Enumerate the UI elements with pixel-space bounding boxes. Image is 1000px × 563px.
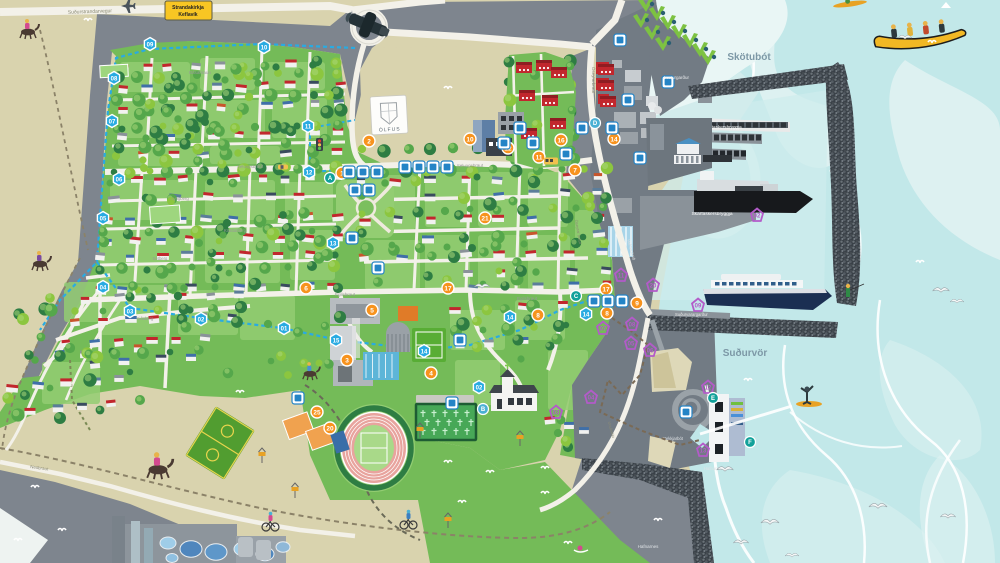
svg-text:03: 03: [553, 411, 560, 417]
svg-text:09: 09: [147, 42, 154, 48]
svg-text:Selvogsbraut: Selvogsbraut: [237, 164, 264, 169]
svg-text:ÓLFUS: ÓLFUS: [379, 125, 401, 133]
svg-text:09: 09: [695, 304, 702, 310]
svg-text:Selvogsbraut: Selvogsbraut: [457, 163, 484, 168]
svg-text:8: 8: [605, 310, 609, 317]
svg-text:20: 20: [650, 284, 657, 290]
svg-text:Egilsbraut: Egilsbraut: [335, 292, 356, 297]
svg-text:02: 02: [476, 385, 483, 391]
svg-text:5: 5: [370, 307, 374, 314]
svg-text:02: 02: [754, 214, 761, 220]
svg-text:B: B: [481, 407, 486, 413]
svg-text:F: F: [748, 440, 752, 446]
svg-text:Básahraun: Básahraun: [189, 70, 211, 75]
svg-text:9: 9: [635, 300, 639, 307]
svg-text:25: 25: [313, 409, 321, 416]
svg-text:2: 2: [367, 138, 371, 145]
svg-text:14: 14: [507, 315, 514, 321]
svg-text:21: 21: [481, 215, 489, 222]
svg-text:4: 4: [429, 370, 433, 377]
svg-text:Keflavík: Keflavík: [178, 12, 197, 18]
svg-text:Suðurvör: Suðurvör: [723, 347, 768, 359]
svg-text:3: 3: [345, 357, 349, 364]
svg-text:08: 08: [111, 76, 118, 82]
svg-text:11: 11: [305, 124, 312, 130]
svg-text:10: 10: [466, 136, 474, 143]
svg-text:06: 06: [116, 177, 123, 183]
svg-text:13: 13: [700, 449, 707, 455]
svg-text:20: 20: [326, 425, 334, 432]
svg-text:15: 15: [333, 338, 340, 344]
svg-text:Óseyrarbraut: Óseyrarbraut: [591, 67, 597, 94]
svg-text:04: 04: [588, 396, 595, 402]
svg-text:12: 12: [705, 386, 712, 392]
svg-text:11: 11: [536, 154, 543, 161]
svg-text:7: 7: [573, 167, 577, 174]
svg-text:Lyngberg: Lyngberg: [171, 196, 189, 201]
svg-text:02: 02: [198, 317, 205, 323]
svg-text:13: 13: [330, 241, 337, 247]
svg-text:05: 05: [100, 216, 107, 222]
svg-text:12: 12: [306, 170, 313, 176]
svg-text:08: 08: [629, 323, 636, 329]
svg-text:D: D: [593, 121, 598, 127]
svg-text:Suðurvarargarður: Suðurvarargarður: [675, 312, 708, 317]
svg-text:Skötubót: Skötubót: [727, 52, 771, 63]
svg-text:17: 17: [444, 285, 452, 292]
svg-text:A: A: [328, 176, 333, 182]
svg-text:14: 14: [421, 349, 428, 355]
svg-text:05: 05: [628, 342, 635, 348]
svg-text:Hafnarnes: Hafnarnes: [638, 544, 660, 549]
svg-text:6: 6: [304, 285, 308, 292]
svg-text:Strandakirkja: Strandakirkja: [172, 5, 204, 11]
svg-text:Setberg: Setberg: [153, 256, 168, 261]
svg-text:17: 17: [602, 286, 610, 293]
svg-text:8: 8: [536, 312, 540, 319]
svg-text:07: 07: [600, 327, 607, 333]
svg-text:Kiðaberg: Kiðaberg: [137, 316, 154, 321]
svg-text:07: 07: [109, 119, 116, 125]
svg-text:E: E: [711, 396, 715, 402]
svg-text:14: 14: [610, 136, 618, 143]
svg-text:Austurgarður: Austurgarður: [663, 74, 690, 80]
svg-text:Knattarberg: Knattarberg: [224, 228, 247, 233]
svg-text:C: C: [574, 294, 579, 300]
svg-text:04: 04: [100, 285, 107, 291]
svg-text:11: 11: [618, 274, 625, 280]
svg-text:01: 01: [281, 326, 288, 332]
svg-text:10: 10: [261, 45, 268, 51]
svg-text:Egilsbraut: Egilsbraut: [517, 296, 538, 301]
svg-text:14: 14: [583, 312, 590, 318]
svg-text:03: 03: [127, 309, 134, 315]
svg-text:06: 06: [647, 349, 654, 355]
svg-text:16: 16: [557, 137, 565, 144]
